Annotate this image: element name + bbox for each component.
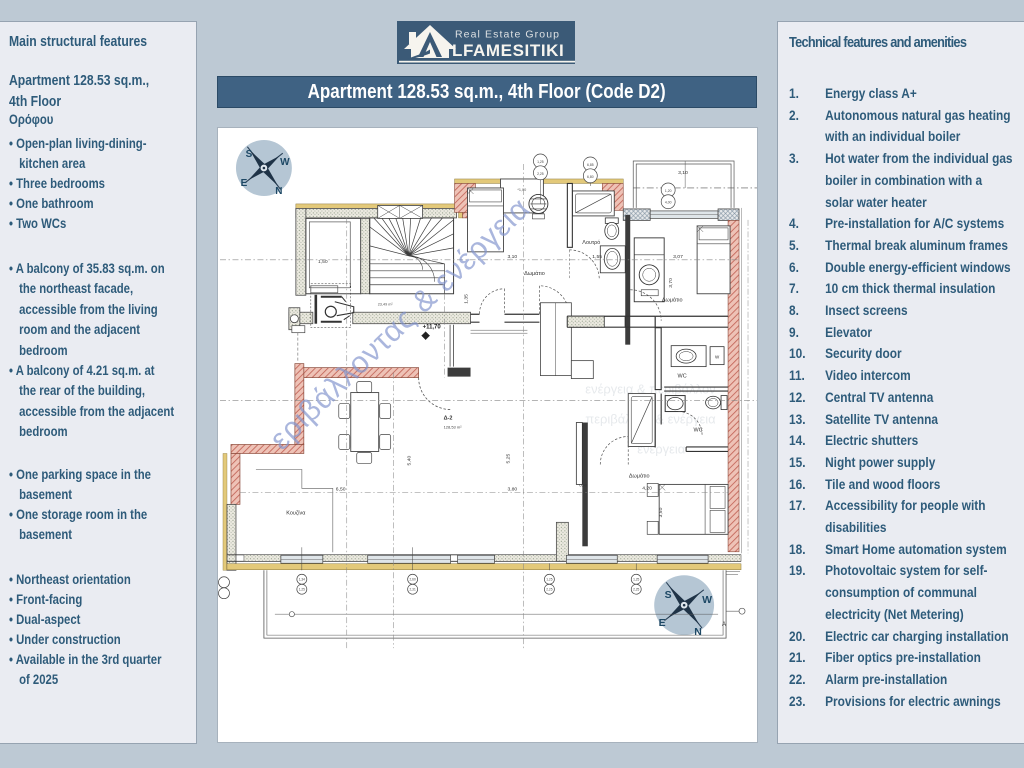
svg-text:6,50: 6,50 bbox=[336, 486, 346, 492]
svg-text:4,00: 4,00 bbox=[665, 201, 672, 205]
svg-text:1,25: 1,25 bbox=[537, 160, 544, 164]
svg-text:6,80: 6,80 bbox=[587, 175, 594, 179]
svg-text:1,25: 1,25 bbox=[299, 588, 305, 592]
svg-text:WC: WC bbox=[678, 374, 687, 380]
svg-text:2,31: 2,31 bbox=[410, 588, 416, 592]
svg-text:3,50: 3,50 bbox=[658, 507, 664, 517]
svg-text:1,34: 1,34 bbox=[299, 578, 305, 582]
svg-text:+11,70: +11,70 bbox=[423, 325, 442, 331]
svg-text:1,55: 1,55 bbox=[592, 254, 602, 260]
svg-text:5,25: 5,25 bbox=[505, 454, 511, 464]
svg-text:S: S bbox=[246, 149, 253, 160]
svg-text:E: E bbox=[241, 178, 248, 189]
svg-text:1,25: 1,25 bbox=[633, 578, 639, 582]
svg-text:3,10: 3,10 bbox=[678, 170, 688, 176]
svg-text:4,20: 4,20 bbox=[642, 485, 652, 491]
svg-text:2,25: 2,25 bbox=[633, 588, 639, 592]
svg-text:2,25: 2,25 bbox=[537, 172, 544, 176]
svg-text:Δ-2: Δ-2 bbox=[444, 416, 453, 422]
svg-text:3,07: 3,07 bbox=[673, 254, 683, 260]
svg-text:S: S bbox=[665, 590, 672, 601]
svg-text:3,70: 3,70 bbox=[668, 278, 674, 288]
svg-text:128,53 m²: 128,53 m² bbox=[444, 425, 463, 430]
svg-text:0,90: 0,90 bbox=[579, 482, 588, 487]
svg-text:*1,00: *1,00 bbox=[517, 188, 526, 192]
svg-text:3,10: 3,10 bbox=[507, 254, 517, 260]
svg-text:A: A bbox=[722, 622, 726, 628]
svg-text:Λουτρό: Λουτρό bbox=[582, 239, 600, 246]
svg-text:5,40: 5,40 bbox=[407, 456, 413, 466]
svg-text:1,35: 1,35 bbox=[464, 294, 470, 304]
svg-text:23,49 m²: 23,49 m² bbox=[378, 303, 394, 307]
svg-text:1,20: 1,20 bbox=[665, 189, 672, 193]
svg-text:N: N bbox=[694, 627, 702, 638]
svg-text:Δωμάτιο: Δωμάτιο bbox=[629, 472, 650, 479]
svg-text:N: N bbox=[275, 186, 282, 197]
svg-text:W: W bbox=[280, 157, 290, 168]
svg-text:1,25: 1,25 bbox=[546, 578, 552, 582]
svg-text:E: E bbox=[659, 618, 666, 629]
svg-text:Real Estate Group: Real Estate Group bbox=[455, 29, 560, 41]
svg-text:W: W bbox=[702, 595, 712, 606]
svg-text:LFAMESITIKI: LFAMESITIKI bbox=[452, 41, 564, 60]
svg-text:2,60: 2,60 bbox=[410, 578, 416, 582]
svg-text:2,25: 2,25 bbox=[546, 588, 552, 592]
svg-text:Δωμάτιο: Δωμάτιο bbox=[662, 297, 683, 304]
svg-text:3,80: 3,80 bbox=[507, 486, 517, 492]
svg-text:Κουζίνα: Κουζίνα bbox=[286, 510, 305, 516]
svg-text:6,85: 6,85 bbox=[587, 163, 594, 167]
svg-text:Δωμάτιο: Δωμάτιο bbox=[524, 270, 545, 277]
